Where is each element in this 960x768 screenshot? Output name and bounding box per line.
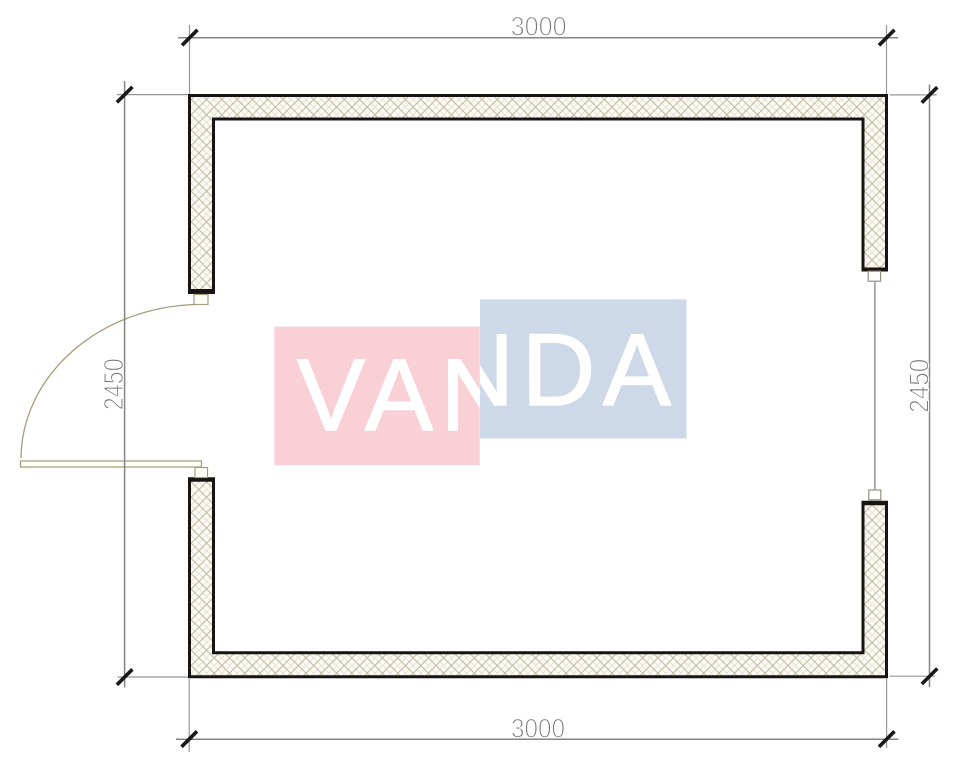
svg-text:2450: 2450	[904, 359, 935, 413]
svg-text:3000: 3000	[511, 11, 567, 41]
svg-text:3000: 3000	[511, 713, 565, 743]
svg-text:2450: 2450	[98, 358, 129, 410]
